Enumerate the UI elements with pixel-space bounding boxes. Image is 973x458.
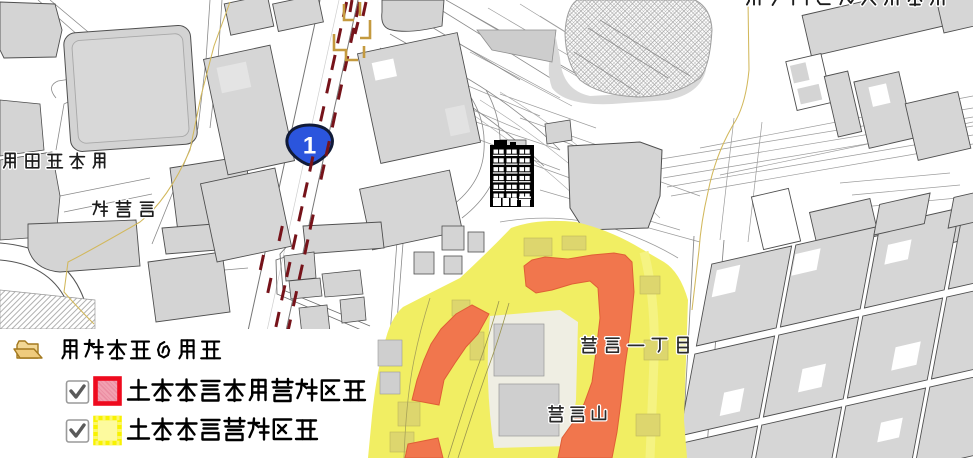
svg-text:1: 1 bbox=[303, 133, 316, 160]
